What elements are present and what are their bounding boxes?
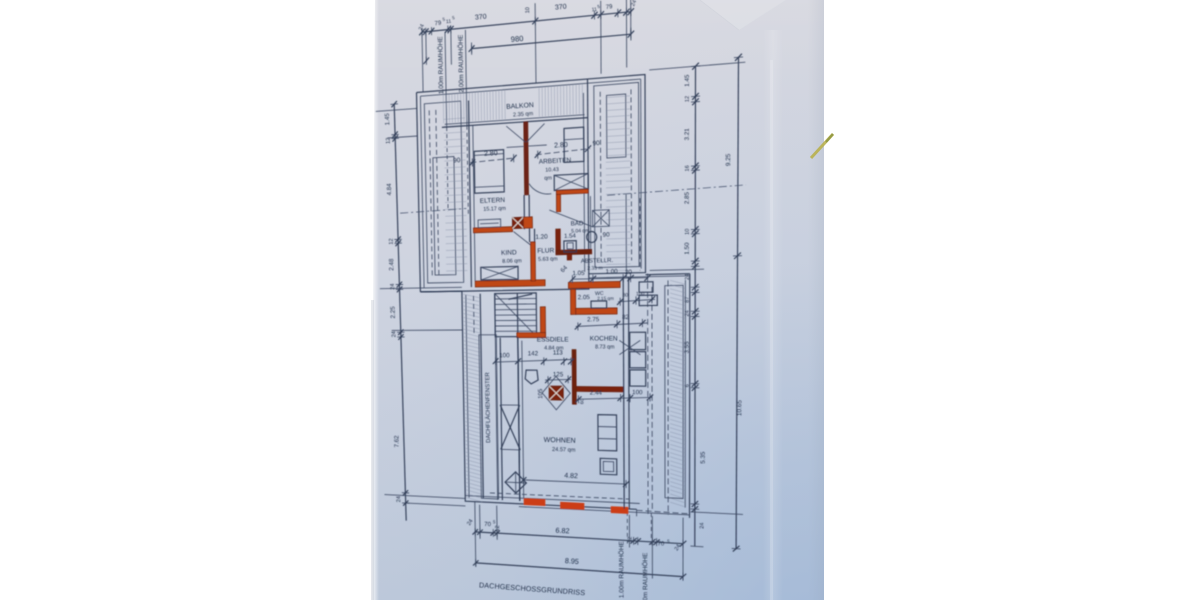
svg-text:12: 12 [389, 238, 395, 244]
svg-text:2.00m RAUMHÖHE: 2.00m RAUMHÖHE [641, 553, 649, 600]
svg-text:KOCHEN: KOCHEN [590, 335, 618, 342]
svg-text:980: 980 [510, 34, 523, 44]
svg-text:12: 12 [685, 96, 691, 102]
svg-text:79: 79 [434, 21, 442, 28]
svg-text:12: 12 [386, 138, 392, 144]
svg-text:8.73 qm: 8.73 qm [595, 345, 615, 351]
svg-text:2.25: 2.25 [390, 306, 397, 319]
svg-text:10: 10 [525, 7, 531, 13]
svg-text:100: 100 [632, 389, 643, 396]
svg-text:BAD: BAD [571, 220, 584, 227]
svg-text:113: 113 [553, 349, 563, 356]
svg-text:90: 90 [453, 157, 461, 164]
svg-text:2.48: 2.48 [388, 258, 395, 271]
svg-text:12: 12 [495, 525, 501, 531]
svg-text:5.35: 5.35 [700, 451, 707, 464]
svg-text:24: 24 [699, 523, 705, 529]
svg-text:70: 70 [484, 522, 492, 528]
svg-text:10.65: 10.65 [736, 400, 743, 416]
svg-text:FLUR: FLUR [537, 247, 554, 254]
svg-text:1.00m RAUMHÖHE: 1.00m RAUMHÖHE [617, 541, 625, 598]
svg-text:2.00m RAUMHÖHE: 2.00m RAUMHÖHE [457, 34, 466, 93]
svg-text:1.45: 1.45 [384, 113, 391, 126]
svg-text:12: 12 [627, 537, 633, 543]
svg-text:1.05: 1.05 [572, 270, 585, 277]
svg-text:15.17 qm: 15.17 qm [483, 206, 506, 213]
svg-text:2.05: 2.05 [578, 294, 591, 301]
svg-text:2.33 m: 2.33 m [587, 265, 602, 271]
svg-text:100: 100 [499, 352, 510, 359]
svg-text:qm: qm [544, 175, 552, 181]
svg-text:70: 70 [657, 541, 665, 547]
svg-text:1.45: 1.45 [684, 74, 691, 87]
svg-text:125: 125 [553, 371, 564, 378]
svg-text:1.20: 1.20 [535, 233, 548, 240]
svg-text:24.57 qm: 24.57 qm [552, 447, 576, 454]
svg-text:WOHNEN: WOHNEN [544, 437, 576, 445]
svg-text:142: 142 [528, 350, 539, 357]
svg-text:105: 105 [538, 388, 544, 399]
svg-text:8.95: 8.95 [565, 556, 580, 566]
svg-text:ABSTELLR.: ABSTELLR. [581, 258, 614, 265]
svg-text:2.75: 2.75 [587, 316, 600, 323]
svg-text:4.84: 4.84 [386, 183, 393, 196]
svg-text:10: 10 [685, 229, 691, 235]
svg-text:2.85: 2.85 [684, 192, 691, 205]
svg-text:3.21: 3.21 [684, 128, 691, 141]
svg-text:4.82: 4.82 [564, 473, 578, 481]
svg-text:7.62: 7.62 [393, 435, 400, 448]
svg-text:2.80: 2.80 [554, 142, 568, 150]
svg-text:9.25: 9.25 [725, 153, 732, 166]
svg-text:90: 90 [603, 231, 611, 238]
svg-text:1.50: 1.50 [684, 242, 691, 255]
svg-text:8.06 qm: 8.06 qm [502, 258, 522, 264]
svg-text:1.00: 1.00 [606, 268, 619, 275]
svg-text:370: 370 [475, 14, 487, 22]
svg-text:79: 79 [606, 4, 614, 11]
svg-text:24: 24 [396, 496, 402, 502]
svg-text:90: 90 [592, 140, 600, 147]
svg-text:6.82: 6.82 [555, 526, 569, 536]
svg-text:11: 11 [446, 19, 452, 26]
svg-text:5.63 qm: 5.63 qm [538, 256, 558, 263]
svg-text:ELTERN: ELTERN [480, 197, 506, 205]
svg-text:370: 370 [555, 4, 567, 12]
svg-text:2.44: 2.44 [590, 390, 603, 397]
svg-text:16: 16 [685, 165, 691, 171]
svg-text:2.15 qm: 2.15 qm [597, 296, 614, 301]
svg-text:1.00m RAUMHÖHE: 1.00m RAUMHÖHE [436, 36, 445, 95]
svg-text:24: 24 [391, 331, 397, 337]
svg-text:DACHFLÄCHENFENSTER: DACHFLÄCHENFENSTER [484, 372, 492, 443]
svg-text:KIND: KIND [501, 249, 517, 256]
svg-text:1.54: 1.54 [564, 233, 577, 239]
svg-text:ESSDIELE: ESSDIELE [537, 336, 569, 343]
svg-text:10.43: 10.43 [545, 167, 559, 174]
svg-text:2.80: 2.80 [484, 150, 498, 158]
